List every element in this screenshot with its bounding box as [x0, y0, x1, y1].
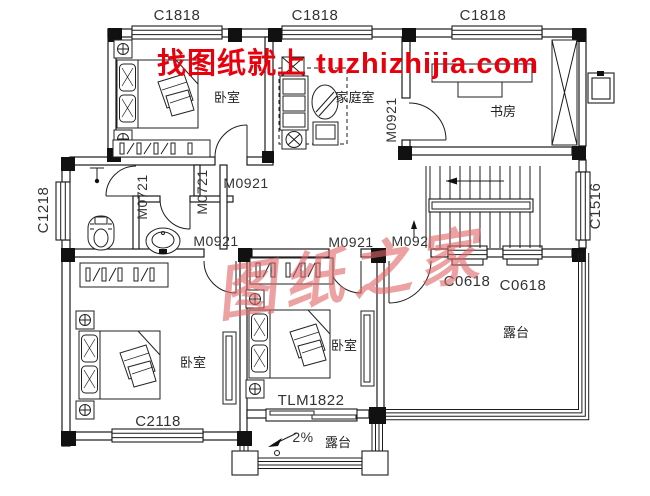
- sink-icon: [146, 228, 180, 254]
- door-label-m0921-bedroom1: M0921: [223, 175, 268, 191]
- window-label-c0618-2: C0618: [500, 277, 547, 294]
- vent-symbol: [90, 168, 104, 183]
- window-c0618-2: [503, 246, 542, 265]
- terrace-column-left: [232, 451, 258, 475]
- room-label-bedroom3: 卧室: [331, 338, 357, 353]
- furniture: [76, 40, 577, 419]
- window-c2118: [112, 429, 203, 442]
- door-label-m0921-bedroom2: M0921: [193, 233, 238, 249]
- door-study: [409, 103, 446, 140]
- door-label-m0921-study: M0921: [383, 97, 399, 142]
- coffee-table-icon: [312, 85, 338, 119]
- squat-toilet-icon: [88, 216, 114, 250]
- window-label-c1818-3: C1818: [460, 7, 507, 24]
- window-c1818-2: [282, 26, 372, 39]
- window-c1818-3: [452, 26, 542, 39]
- window-label-c1516: C1516: [587, 183, 604, 230]
- door-label-m0721-2: M0721: [194, 169, 210, 214]
- room-label-bedroom2: 卧室: [180, 355, 206, 370]
- slope-arrow: [268, 438, 282, 447]
- window-c1218: [56, 182, 70, 240]
- dresser-icon-bedroom3: [361, 311, 374, 386]
- room-label-family-room: 家庭室: [335, 90, 374, 105]
- wardrobe-icon-bedroom1: [113, 140, 210, 157]
- room-label-terrace-right: 露台: [503, 325, 529, 340]
- door-washroom: [160, 199, 190, 229]
- door-label-m0721-1: M0721: [134, 174, 150, 219]
- window-label-c1818-1: C1818: [154, 7, 201, 24]
- watermark-banner: 找图纸就上 tuzhizhijia.com: [157, 46, 539, 80]
- bed-icon-bedroom2: [76, 311, 160, 419]
- floor-plan-canvas: C1818 C1818 C1818 C1218 C1516 C0618 C061…: [0, 0, 650, 496]
- flue-box: [588, 71, 614, 103]
- slope-label: 2%: [292, 429, 313, 445]
- room-label-terrace-bottom: 露台: [325, 435, 351, 450]
- room-label-study: 书房: [490, 104, 516, 119]
- stair-direction-arrow: [446, 178, 457, 185]
- window-label-c1218: C1218: [35, 187, 52, 234]
- door-sliding-tlm1822: [266, 409, 357, 421]
- window-c1818-1: [132, 26, 222, 39]
- floor-plan-drawing: C1818 C1818 C1818 C1218 C1516 C0618 C061…: [0, 0, 650, 496]
- window-label-c2118: C2118: [135, 413, 181, 430]
- stair-handrail: [429, 199, 533, 212]
- terrace-column-right: [362, 451, 388, 475]
- armchair-icon: [313, 122, 338, 145]
- wardrobe-icon-bedroom2: [80, 263, 168, 287]
- window-label-c1818-2: C1818: [292, 7, 339, 24]
- door-label-tlm1822: TLM1822: [278, 392, 345, 409]
- dresser-icon-bedroom2: [223, 332, 236, 404]
- door-bedroom1: [215, 125, 247, 157]
- door-wc: [106, 166, 136, 196]
- room-label-bedroom1: 卧室: [214, 90, 240, 105]
- closet-icon-study: [552, 40, 577, 145]
